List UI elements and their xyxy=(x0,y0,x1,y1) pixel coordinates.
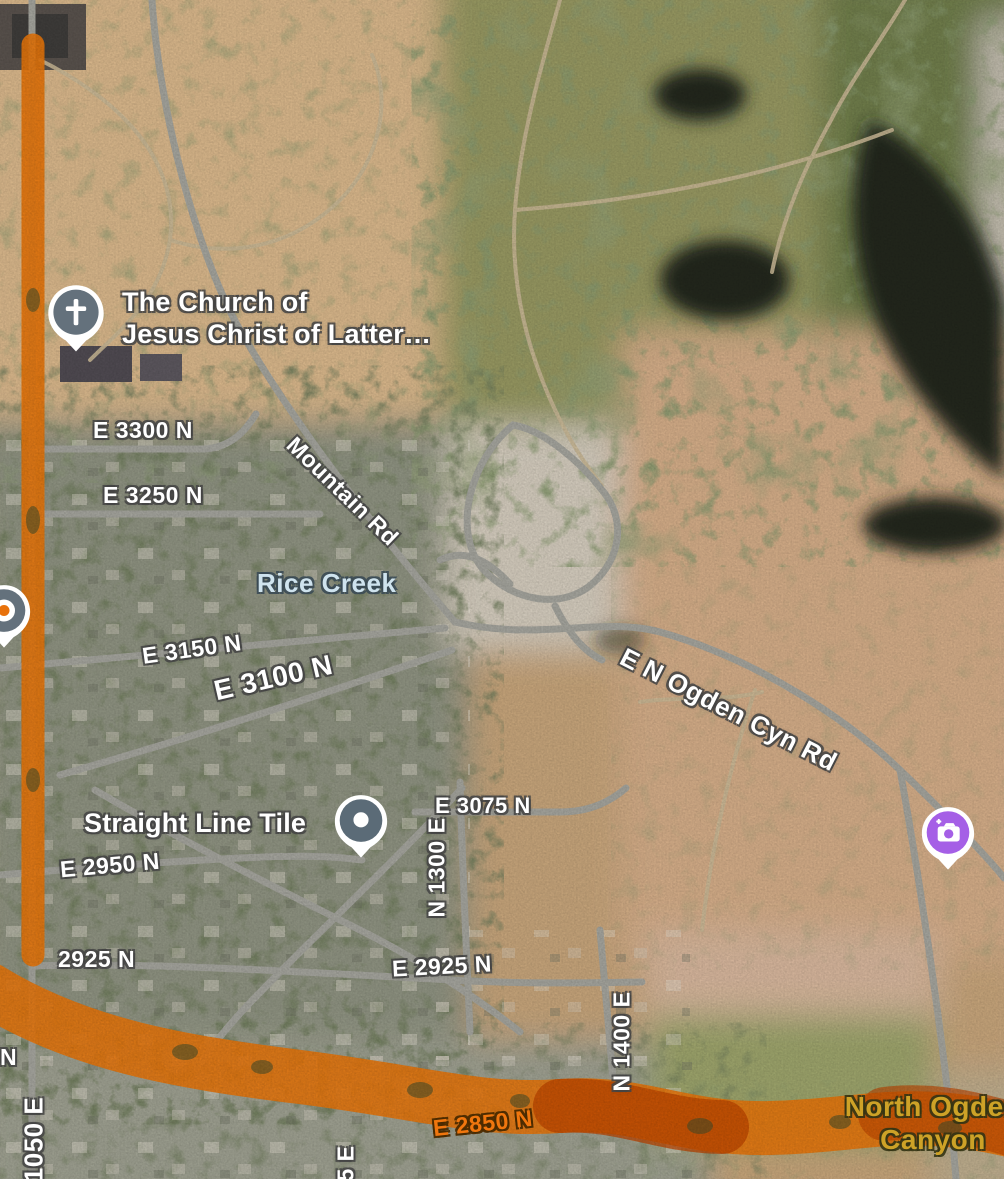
road-label-n-1300-e: N 1300 E xyxy=(424,808,451,928)
water-label-rice-creek: Rice Creek xyxy=(257,568,396,599)
road-label-e-3250-n: E 3250 N xyxy=(103,482,203,509)
canyon-label-line1: North Ogden xyxy=(828,1090,1004,1123)
church-label-line1: The Church of xyxy=(122,286,431,318)
road-label-2925-n: 2925 N xyxy=(58,946,135,973)
road-label-e-3300-n: E 3300 N xyxy=(93,417,193,444)
road-label-n-1400-e: N 1400 E xyxy=(609,982,636,1102)
satellite-imagery xyxy=(0,0,1004,1179)
church-label-line2: Jesus Christ of Latter… xyxy=(122,318,431,350)
road-label-fragment-n: N xyxy=(0,1044,17,1071)
place-pin-partial[interactable] xyxy=(0,583,32,654)
straight-line-tile-poi-label[interactable]: Straight Line Tile xyxy=(84,808,306,839)
road-label-fragment-5e: 5 E xyxy=(333,1136,360,1179)
church-poi-pin[interactable] xyxy=(46,283,106,358)
road-label-n-1050-e: 1050 E xyxy=(19,1092,50,1179)
place-dot-icon xyxy=(333,793,389,859)
church-poi-label[interactable]: The Church of Jesus Christ of Latter… xyxy=(122,286,431,350)
map-canvas[interactable]: E 3300 N E 3250 N Mountain Rd Rice Creek… xyxy=(0,0,1004,1179)
place-dot-orange-icon xyxy=(0,583,32,649)
photo-poi-pin[interactable] xyxy=(920,805,976,876)
road-label-e-2925-n: E 2925 N xyxy=(391,950,492,982)
church-cross-icon xyxy=(46,283,106,353)
area-label-north-ogden-canyon: North Ogden Canyon xyxy=(828,1090,1004,1156)
canyon-label-line2: Canyon xyxy=(828,1123,1004,1156)
business-poi-pin[interactable] xyxy=(333,793,389,864)
camera-plus-icon xyxy=(920,805,976,871)
